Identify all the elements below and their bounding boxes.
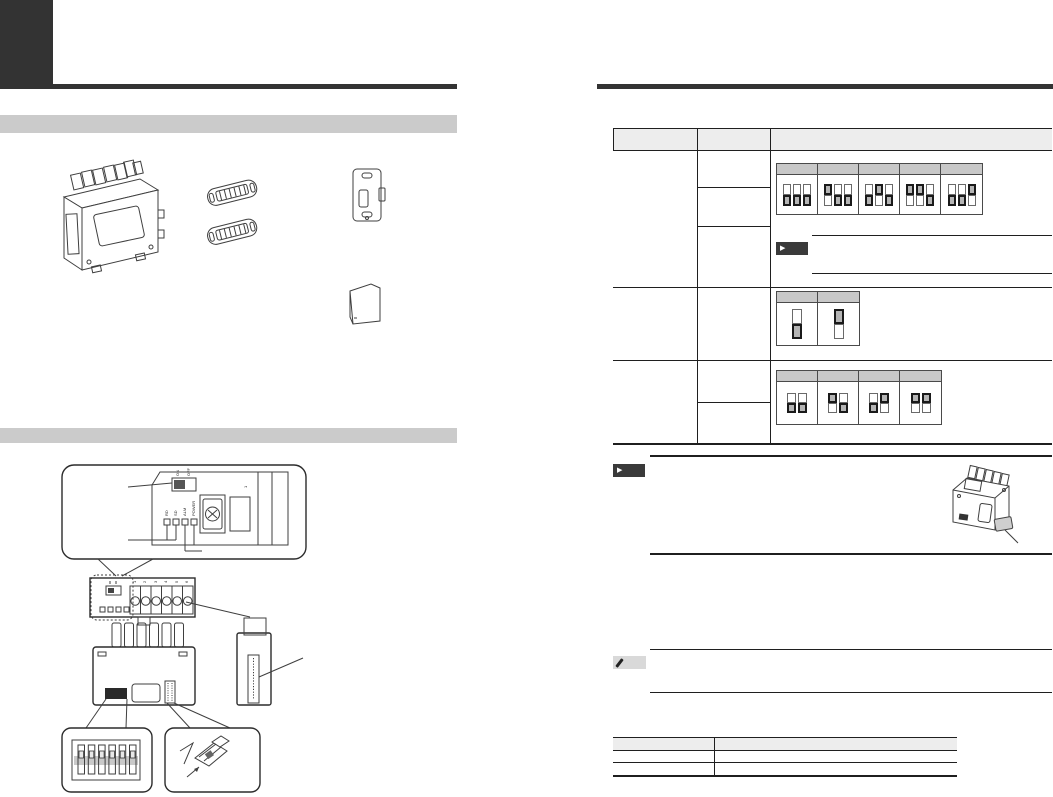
dip-option-cell (777, 164, 818, 214)
dip-switch-down (948, 184, 956, 206)
table-line (613, 128, 614, 150)
switch-label-on: ON (175, 470, 180, 476)
dip-switch-down (787, 393, 796, 413)
dip-option-table-group1 (776, 163, 983, 215)
dip-switch-down (783, 184, 791, 206)
bottom-table-header (613, 737, 957, 750)
switch-label-off: OFF (186, 467, 191, 476)
dip-switch-down (793, 184, 801, 206)
dip-switch-down (839, 393, 848, 413)
note-badge: ▶ (613, 464, 645, 477)
dip-switch-up (828, 393, 837, 413)
table-line (714, 737, 715, 775)
rear-view-illustration (86, 623, 230, 728)
led-label-sd: SD (173, 510, 178, 516)
dip-option-label (900, 164, 940, 175)
table-line (697, 128, 698, 443)
dip-switch-down (792, 309, 802, 339)
dip-switch-down (844, 184, 852, 206)
rear-terminal-lugs (112, 623, 184, 647)
front-view-illustration: 1 2 3 4 5 6 (90, 575, 250, 625)
dip-option-cell (859, 371, 900, 424)
usb-port (105, 688, 127, 699)
sd-card-illustration (345, 281, 387, 327)
table-line (770, 128, 771, 443)
manual-page: ON OFF RD SD ALM POWER (0, 0, 1053, 797)
led-label-alm: ALM (182, 508, 187, 516)
table-line (613, 762, 957, 763)
cable-clamp-illustration (203, 168, 267, 258)
dip-option-cell (818, 164, 859, 214)
note-rule (812, 235, 1052, 236)
part-names-diagram: ON OFF RD SD ALM POWER (40, 455, 330, 797)
dip-option-table-group3 (776, 370, 942, 425)
table-line (613, 128, 1052, 129)
dip-option-table-group2 (776, 291, 860, 346)
dip-option-label (777, 292, 817, 303)
note-rule (650, 455, 1052, 457)
dip-option-cell (900, 371, 941, 424)
dip-switch-up (916, 184, 924, 206)
table-line (613, 150, 1052, 151)
dip-option-label (777, 164, 817, 175)
jumper-plug-callout-box (165, 728, 260, 792)
table-subline (697, 226, 770, 227)
dip-switch-down (869, 393, 878, 413)
dip-option-label (818, 292, 859, 303)
dip-option-cell (859, 164, 900, 214)
page-corner-tab (0, 0, 53, 84)
dip-switch-up (906, 184, 914, 206)
dip-switch-down (885, 184, 893, 206)
sd-card-inserted (994, 517, 1013, 532)
dip-option-cell (777, 371, 818, 424)
mounting-plate-illustration (347, 165, 389, 227)
table-subline (697, 187, 770, 188)
dip-switch-down (865, 184, 873, 206)
table-line (613, 287, 1052, 288)
dip-switch-down (803, 184, 811, 206)
dip-switch-up (922, 393, 931, 413)
dip-switch-up (834, 309, 844, 339)
dip-option-label (818, 164, 858, 175)
dip-option-label (818, 371, 858, 382)
section-bar-part-names (0, 428, 457, 443)
dip-switch-up (824, 184, 832, 206)
pencil-memo-icon (615, 658, 624, 668)
dip-option-cell (900, 164, 941, 214)
table-line (613, 360, 1052, 361)
dip-option-label (900, 371, 941, 382)
play-arrow-note-icon: ▶ (780, 245, 785, 252)
memo-badge (613, 656, 646, 669)
table-bottom-line (613, 775, 957, 777)
table-subline (697, 402, 770, 403)
dip-option-cell (818, 371, 859, 424)
dip-switch-up (911, 393, 920, 413)
note-badge: ▶ (776, 242, 808, 255)
note-rule (812, 273, 1052, 274)
memo-rule (650, 692, 1052, 693)
dip-switch-down (834, 184, 842, 206)
section-bar-accessories (0, 115, 457, 133)
dip-bank-callout-box (62, 728, 152, 792)
right-column-top-rule (597, 84, 1053, 89)
led-label-rd: RD (164, 510, 169, 516)
dip-option-label (777, 371, 817, 382)
dip-option-cell (818, 292, 859, 345)
note-rule (650, 553, 1052, 555)
dip-option-label (859, 164, 899, 175)
settings-table-header (613, 128, 1052, 150)
dip-switch-up (875, 184, 883, 206)
table-line (613, 737, 957, 738)
front-panel-callout-bubble: ON OFF RD SD ALM POWER (62, 465, 306, 576)
dip-switch-down (798, 393, 807, 413)
unit-with-sd-card-illustration (943, 460, 1023, 550)
led-label-power: POWER (191, 501, 196, 516)
memo-rule (650, 649, 1052, 650)
dip-switch-down (926, 184, 934, 206)
main-unit-illustration (58, 152, 178, 278)
side-view-illustration (237, 618, 303, 705)
left-column-top-rule (0, 84, 457, 89)
dip-option-cell (941, 164, 982, 214)
table-line (613, 750, 957, 751)
dip-option-label (941, 164, 982, 175)
dip-switch-up (968, 184, 976, 206)
dip-option-cell (777, 292, 818, 345)
dip-switch-down (958, 184, 966, 206)
table-bottom-line (613, 443, 1052, 445)
play-arrow-note-icon: ▶ (617, 467, 622, 474)
dip-switch-up (880, 393, 889, 413)
dip-option-label (859, 371, 899, 382)
